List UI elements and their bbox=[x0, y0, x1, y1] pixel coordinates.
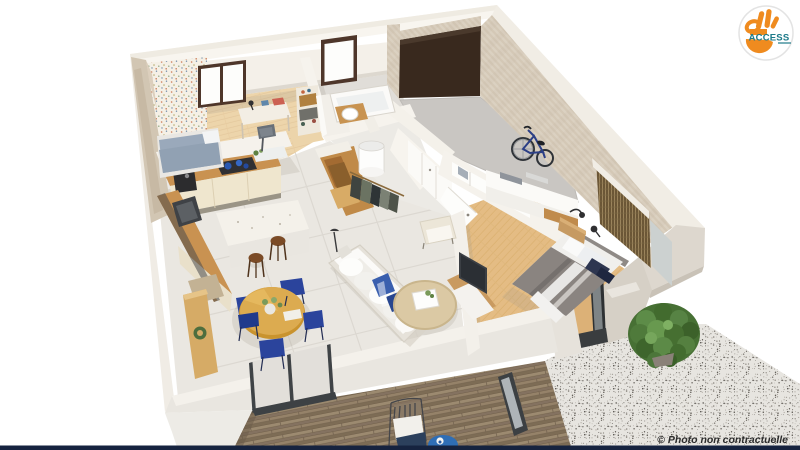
svg-text:© Photo non contractuelle: © Photo non contractuelle bbox=[657, 434, 788, 446]
svg-text:ACCESS: ACCESS bbox=[749, 33, 790, 44]
